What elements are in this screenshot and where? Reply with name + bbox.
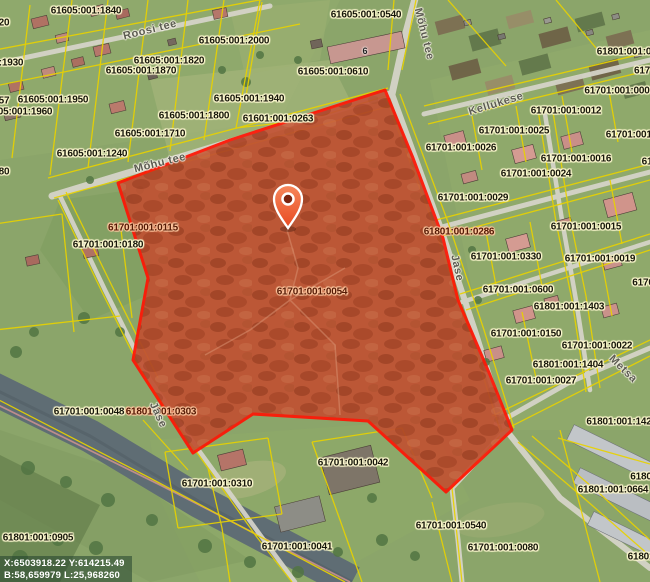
coordinate-bl: B:58,659979 L:25,968260 [4,570,125,582]
map-imagery-layer [0,0,650,582]
coordinate-readout: X:6503918.22 Y:614215.49 B:58,659979 L:2… [0,556,132,582]
map-canvas[interactable]: 2061605:001:184061605:001:054061605:001:… [0,0,650,582]
coordinate-xy: X:6503918.22 Y:614215.49 [4,558,125,570]
